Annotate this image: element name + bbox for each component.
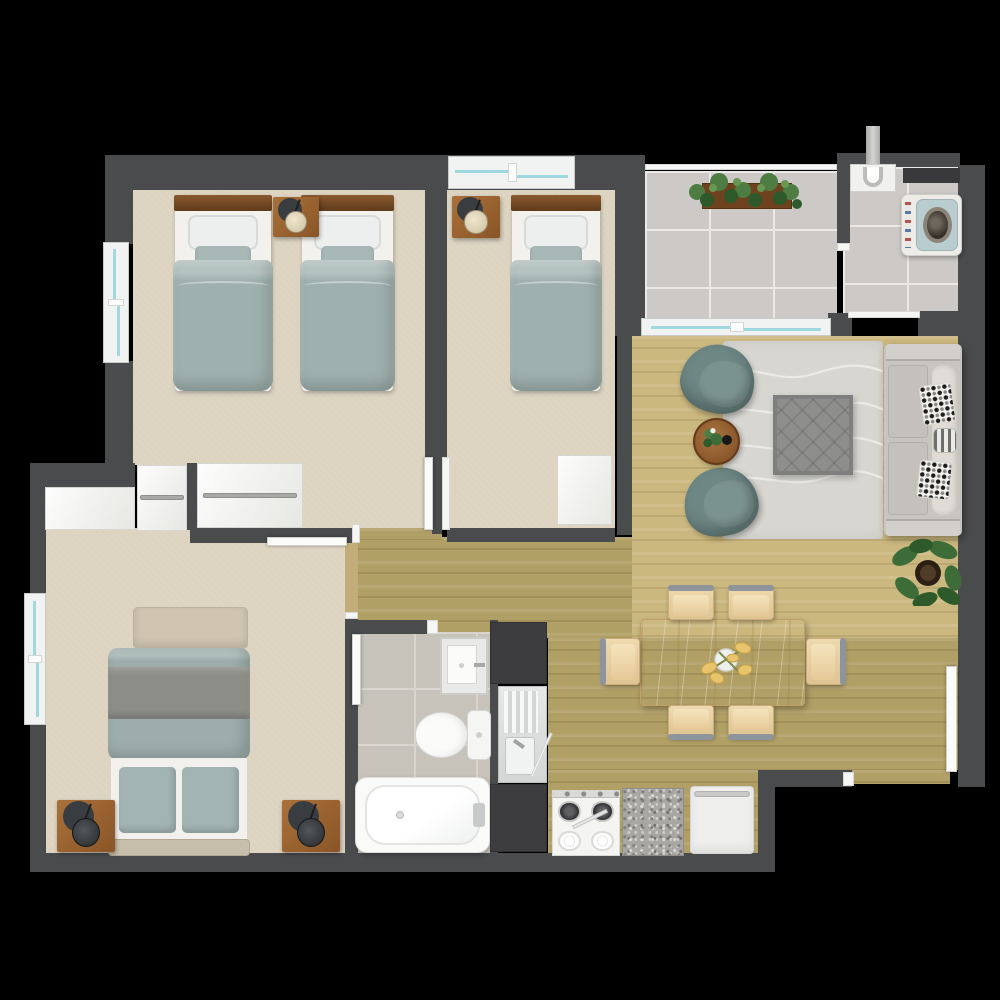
vanity-drain — [459, 663, 464, 668]
bathroom-door-jamb — [427, 620, 438, 634]
planter-foliage — [685, 170, 807, 220]
wall-patio-laundry — [837, 153, 850, 245]
single-bed-a — [173, 195, 273, 391]
master-door-leaf — [267, 537, 347, 546]
granite-counter — [622, 788, 684, 856]
pillow-white — [524, 215, 588, 250]
armchair-south — [679, 462, 764, 542]
master-door-threshold — [345, 543, 358, 620]
wall-b1-b2 — [425, 188, 447, 458]
bedroom1-closet — [197, 463, 303, 528]
duvet-fold — [514, 281, 599, 291]
floor-plan — [0, 0, 1000, 1000]
kitchen-counter-dark-lower — [490, 784, 547, 852]
master-wall-jamb — [352, 524, 360, 543]
window-glass — [33, 601, 36, 657]
master-foot-bench — [133, 607, 248, 649]
sofa-armrest — [886, 519, 961, 536]
lamp-shade — [285, 211, 307, 233]
patio-planter — [685, 170, 807, 220]
nightstand-bedroom1 — [273, 197, 319, 237]
entry-door-jamb — [843, 772, 854, 786]
toilet-bowl — [415, 712, 468, 758]
window-glass — [455, 170, 510, 173]
kitchen-sink — [498, 686, 547, 783]
bed-headboard — [511, 195, 601, 211]
wall-left-upper — [105, 188, 133, 244]
blanket-band — [108, 667, 250, 719]
laundry-vent — [903, 168, 960, 183]
lamp-shade — [72, 818, 100, 847]
bedroom2-window — [448, 156, 575, 189]
round-side-table — [693, 418, 740, 465]
duvet — [300, 260, 395, 391]
flower-centerpiece — [693, 638, 763, 686]
duvet — [510, 260, 602, 391]
wall-master-left-up — [30, 488, 46, 595]
wall-b2-bottom — [447, 528, 615, 542]
toilet — [415, 710, 491, 760]
laundry-pipe — [866, 126, 880, 168]
washing-machine — [901, 194, 962, 256]
nightstand-master-right — [282, 800, 340, 852]
tub-faucet — [473, 803, 485, 827]
lamp-shade — [464, 210, 487, 234]
dining-chair-bottom-2 — [728, 705, 774, 738]
pillow-right — [182, 767, 239, 834]
wall-b2-living — [617, 335, 632, 535]
kitchen-cabinet — [690, 786, 754, 854]
wall-master-left-low — [30, 723, 46, 855]
wall-b2-patio — [615, 155, 645, 336]
master-closet-plain — [45, 487, 135, 530]
bedroom2-closet — [557, 455, 612, 525]
laundry-sink — [850, 164, 896, 192]
drainboard — [504, 691, 539, 733]
entry-floor — [850, 770, 950, 784]
window-glass — [738, 328, 821, 331]
pillow-white — [314, 215, 381, 250]
bedroom1-vestibule-floor — [303, 463, 425, 528]
window-glass — [36, 662, 39, 718]
tub-drain — [396, 811, 404, 819]
window-mullion — [108, 299, 125, 306]
window-glass — [117, 305, 120, 356]
wall-closet-sliver — [187, 463, 197, 530]
window-mullion — [730, 322, 743, 332]
window-glass — [513, 175, 568, 178]
bed-headboard — [174, 195, 272, 211]
entry-door-leaf — [946, 666, 957, 772]
closet-rail — [140, 495, 183, 500]
stove — [552, 790, 620, 856]
pillow-left — [119, 767, 176, 834]
wall-left-mid — [105, 361, 133, 465]
burner — [591, 831, 613, 851]
wall-bathroom-top — [345, 620, 432, 634]
stove-control-panel — [553, 791, 619, 798]
vanity-faucet — [474, 663, 485, 667]
wall-right — [958, 165, 985, 787]
table-centerpiece-flowers — [693, 638, 763, 686]
sofa-armrest — [886, 344, 961, 361]
wall-corner-l — [30, 463, 135, 490]
master-bed — [108, 648, 250, 856]
wall-dining-corner — [758, 770, 775, 872]
monstera-leaves — [891, 538, 963, 606]
dining-chair-right — [806, 638, 844, 685]
dining-chair-top-2 — [728, 587, 774, 620]
cabinet-handle — [694, 791, 750, 797]
duvet-fold — [304, 281, 391, 291]
window-mullion — [508, 163, 517, 182]
sink-pipe — [863, 167, 882, 187]
master-window — [24, 593, 46, 725]
closet-rail — [203, 493, 297, 498]
bathroom-door-leaf — [352, 634, 361, 705]
nightstand-master-left — [57, 800, 115, 852]
bedroom2-door-jamb — [442, 457, 450, 530]
sofa — [884, 344, 962, 536]
ottoman-coffee-table — [773, 395, 853, 475]
dining-chair-top-1 — [668, 587, 714, 620]
bed-headboard — [108, 839, 250, 856]
duvet-fold — [177, 281, 269, 291]
laundry-threshold — [848, 311, 920, 318]
burner — [558, 831, 580, 851]
washer-drum — [923, 207, 951, 243]
patterned-pillow — [919, 382, 957, 426]
pillow-white — [188, 215, 258, 250]
bedroom2-door-leaf — [424, 457, 433, 530]
dining-chair-left — [602, 638, 640, 685]
patio-sliding-door — [641, 318, 831, 336]
laundry-opening-jamb — [837, 243, 850, 251]
tub-interior — [365, 785, 479, 846]
dining-chair-bottom-1 — [668, 705, 714, 738]
master-opening-jamb — [345, 612, 358, 619]
bathtub — [355, 777, 490, 853]
wall-patio-bottom-b — [918, 311, 958, 336]
bedroom1-window — [103, 242, 129, 363]
window-glass — [113, 249, 116, 300]
wall-b1-b2-stub — [432, 458, 442, 534]
nightstand-bedroom2 — [452, 196, 500, 238]
striped-pillow — [933, 428, 956, 453]
patterned-pillow — [916, 460, 953, 502]
burner — [558, 801, 580, 821]
duvet — [173, 260, 273, 391]
single-bed-c — [510, 195, 602, 391]
lamp-shade — [297, 818, 325, 847]
window-glass — [651, 326, 734, 329]
washer-controls — [905, 202, 911, 248]
monstera-plant — [891, 538, 963, 606]
bathroom-vanity — [440, 637, 488, 695]
kitchen-counter-dark-upper — [490, 622, 547, 684]
window-mullion — [28, 655, 42, 663]
master-closet-rail — [137, 465, 187, 531]
flush-button — [476, 732, 482, 738]
